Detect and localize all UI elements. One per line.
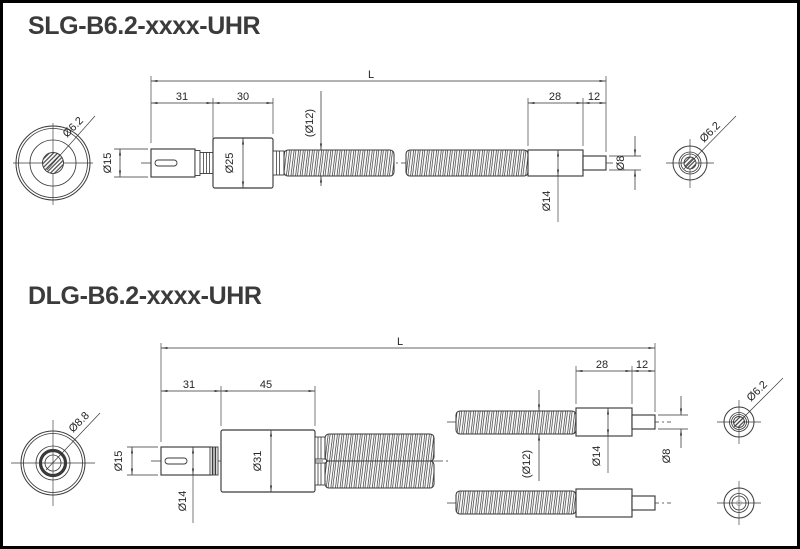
dlg-dim-sleeve-dia: Ø14 [591, 446, 603, 467]
slg-tip [583, 156, 606, 170]
dlg-dim-ferrule-inner-dia: Ø14 [177, 491, 189, 512]
slg-dimensions: L 31 30 28 12 (Ø12) Ø15 Ø25 [102, 69, 641, 222]
dlg-dim-ferrule-dia: Ø15 [113, 451, 125, 472]
dlg-sleeve-lower [576, 489, 632, 517]
dlg-dim-45: 45 [260, 379, 272, 391]
slg-conduit-a [284, 150, 394, 176]
slg-dim-31: 31 [176, 91, 188, 103]
slg-input-dia-label: Ø6.2 [61, 115, 86, 140]
slg-drawing: Ø6.2 [13, 69, 736, 222]
slg-dim-28: 28 [549, 91, 561, 103]
dlg-dim-tip-dia: Ø8 [661, 449, 673, 464]
dlg-tip-lower [632, 496, 655, 510]
slg-dim-body-dia: Ø25 [224, 153, 236, 174]
dlg-dim-12: 12 [636, 359, 648, 371]
dlg-dim-28: 28 [596, 359, 608, 371]
slg-ferrule-slot [155, 160, 177, 166]
dlg-dim-body-dia: Ø31 [252, 451, 264, 472]
dlg-output-face-view-lower [717, 481, 761, 525]
dlg-conduit-upper-a [325, 434, 434, 461]
slg-output-dia-label: Ø6.2 [698, 120, 723, 145]
technical-drawing-canvas: Ø6.2 [3, 3, 797, 546]
dlg-output-dia-label: Ø6.2 [745, 379, 770, 404]
dlg-conduit-lower-b [456, 491, 576, 514]
dlg-drawing: Ø8.8 [11, 336, 783, 525]
dlg-body [221, 430, 315, 492]
slg-dim-conduit-dia: (Ø12) [304, 109, 316, 137]
dlg-tip-upper [632, 415, 655, 429]
dlg-output-face-view-upper: Ø6.2 [717, 378, 783, 444]
dlg-dim-conduit-dia: (Ø12) [521, 450, 533, 478]
slg-sleeve [528, 150, 583, 176]
slg-conduit-b [406, 150, 528, 176]
drawing-sheet: SLG-B6.2-xxxx-UHR DLG-B6.2-xxxx-UHR [0, 0, 800, 549]
slg-dim-L: L [368, 69, 374, 81]
slg-dim-sleeve-dia: Ø14 [541, 191, 553, 212]
dlg-conduit-lower-a [325, 461, 434, 488]
slg-input-face-view: Ø6.2 [13, 115, 95, 205]
dlg-ferrule-slot [165, 458, 187, 464]
slg-dim-12: 12 [588, 91, 600, 103]
dlg-conduit-upper-b [456, 411, 576, 434]
slg-dim-ferrule-dia: Ø15 [102, 153, 114, 174]
dlg-input-dia-label: Ø8.8 [67, 410, 92, 435]
slg-dim-tip-dia: Ø8 [615, 156, 627, 171]
dlg-input-face-view: Ø8.8 [11, 410, 100, 506]
dlg-dim-L: L [397, 336, 403, 348]
slg-side-view [141, 138, 617, 188]
slg-dim-30: 30 [237, 91, 249, 103]
dlg-dim-31: 31 [183, 379, 195, 391]
slg-output-face-view: Ø6.2 [666, 116, 736, 188]
dlg-sleeve-upper [576, 408, 632, 436]
